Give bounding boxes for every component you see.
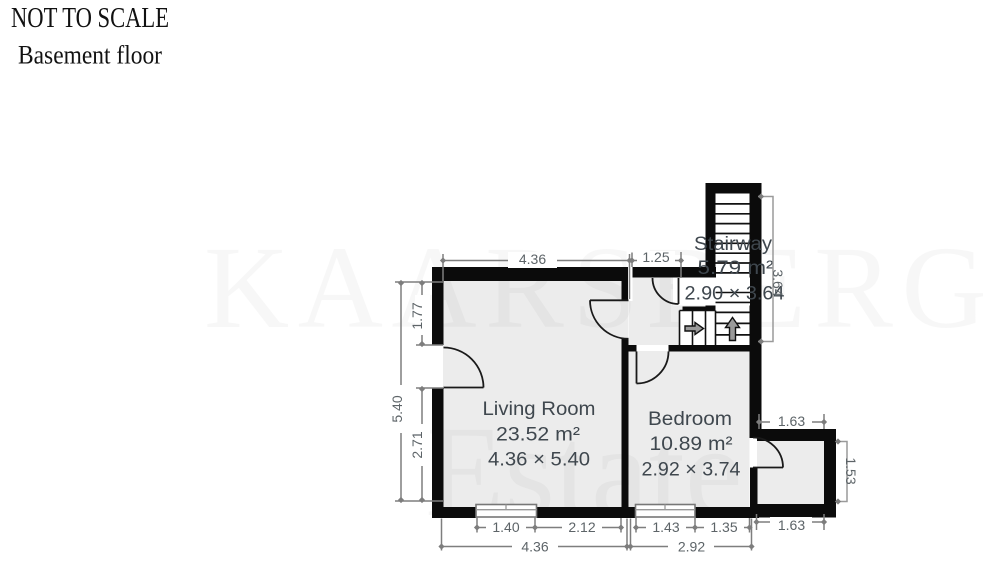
svg-text:1.77: 1.77 [409, 302, 425, 329]
svg-text:4.36: 4.36 [519, 251, 546, 267]
svg-text:2.71: 2.71 [409, 431, 425, 458]
svg-text:1.53: 1.53 [843, 457, 859, 484]
svg-text:2.90 × 3.64: 2.90 × 3.64 [685, 284, 785, 305]
svg-text:1.40: 1.40 [492, 519, 519, 535]
svg-text:4.36 × 5.40: 4.36 × 5.40 [488, 450, 590, 471]
svg-text:1.63: 1.63 [778, 517, 805, 533]
svg-text:4.36: 4.36 [521, 539, 548, 555]
svg-text:10.89 m²: 10.89 m² [650, 434, 733, 455]
svg-text:Basement floor: Basement floor [18, 41, 162, 70]
svg-text:Stairway: Stairway [694, 234, 773, 255]
svg-text:3.64: 3.64 [770, 269, 786, 296]
svg-text:5.40: 5.40 [389, 395, 405, 422]
svg-text:Living Room: Living Room [483, 399, 596, 420]
svg-text:5.79 m²: 5.79 m² [698, 258, 774, 279]
svg-text:1.63: 1.63 [778, 413, 805, 429]
svg-text:2.92 × 3.74: 2.92 × 3.74 [642, 460, 741, 481]
svg-text:2.92: 2.92 [678, 539, 705, 555]
svg-text:2.12: 2.12 [568, 519, 595, 535]
svg-text:NOT TO SCALE: NOT TO SCALE [11, 2, 169, 34]
svg-text:Bedroom: Bedroom [648, 409, 732, 430]
svg-text:1.25: 1.25 [642, 249, 669, 265]
svg-text:1.35: 1.35 [710, 519, 737, 535]
svg-text:1.43: 1.43 [652, 519, 679, 535]
svg-text:KAARSBERG: KAARSBERG [204, 222, 995, 353]
svg-text:23.52 m²: 23.52 m² [496, 425, 580, 446]
